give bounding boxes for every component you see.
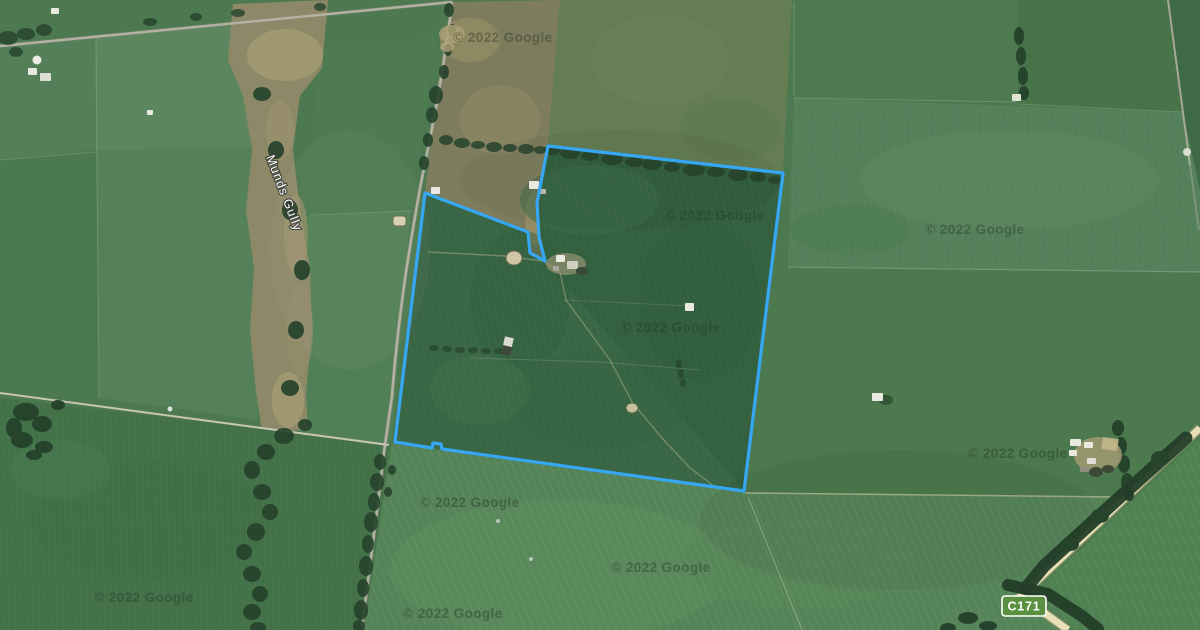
route-shield-label: C171: [1007, 600, 1040, 614]
field-rows: [1018, 0, 1183, 112]
dirt-patch: [440, 42, 454, 52]
google-watermark: © 2022 Google: [665, 208, 764, 223]
water-tank: [33, 56, 42, 65]
building: [556, 255, 565, 262]
field-patch: [96, 148, 258, 420]
google-watermark: © 2022 Google: [453, 30, 552, 45]
google-watermark: © 2022 Google: [94, 590, 193, 605]
building: [40, 73, 51, 81]
building: [1084, 442, 1093, 448]
building: [567, 261, 578, 269]
building: [147, 110, 153, 115]
tree: [576, 267, 588, 275]
field-mottle: [590, 15, 730, 105]
building: [1069, 450, 1077, 456]
field-speck: [496, 519, 500, 523]
building: [28, 68, 37, 75]
building: [685, 303, 694, 311]
field-patch: [95, 24, 251, 150]
google-watermark: © 2022 Google: [925, 222, 1024, 237]
building: [872, 393, 883, 401]
google-watermark: © 2022 Google: [621, 320, 720, 335]
building: [1183, 148, 1191, 156]
gully-sand: [247, 29, 323, 81]
field-patch: [0, 150, 99, 406]
google-watermark: © 2022 Google: [968, 446, 1067, 461]
route-shield-c171: C171: [1002, 596, 1046, 616]
farm-dam: [393, 216, 406, 226]
google-watermark: © 2022 Google: [403, 606, 502, 621]
field-rows: [788, 98, 1200, 272]
building: [553, 266, 559, 271]
building: [1070, 439, 1081, 446]
field-speck: [529, 557, 533, 561]
building: [51, 8, 59, 14]
farm-dam: [626, 403, 638, 413]
tree: [1089, 467, 1103, 477]
building: [529, 181, 539, 189]
satellite-map[interactable]: © 2022 Google© 2022 Google© 2022 Google©…: [0, 0, 1200, 630]
field-patch: [792, 0, 1018, 104]
building: [431, 187, 440, 194]
dirt-patch: [1101, 437, 1119, 451]
building: [1087, 458, 1096, 464]
farm-dam: [506, 251, 522, 265]
building: [1012, 94, 1021, 101]
building: [1080, 467, 1089, 472]
google-watermark: © 2022 Google: [611, 560, 710, 575]
tree: [1102, 465, 1114, 473]
building: [168, 407, 173, 412]
building: [503, 336, 514, 347]
google-watermark: © 2022 Google: [420, 495, 519, 510]
